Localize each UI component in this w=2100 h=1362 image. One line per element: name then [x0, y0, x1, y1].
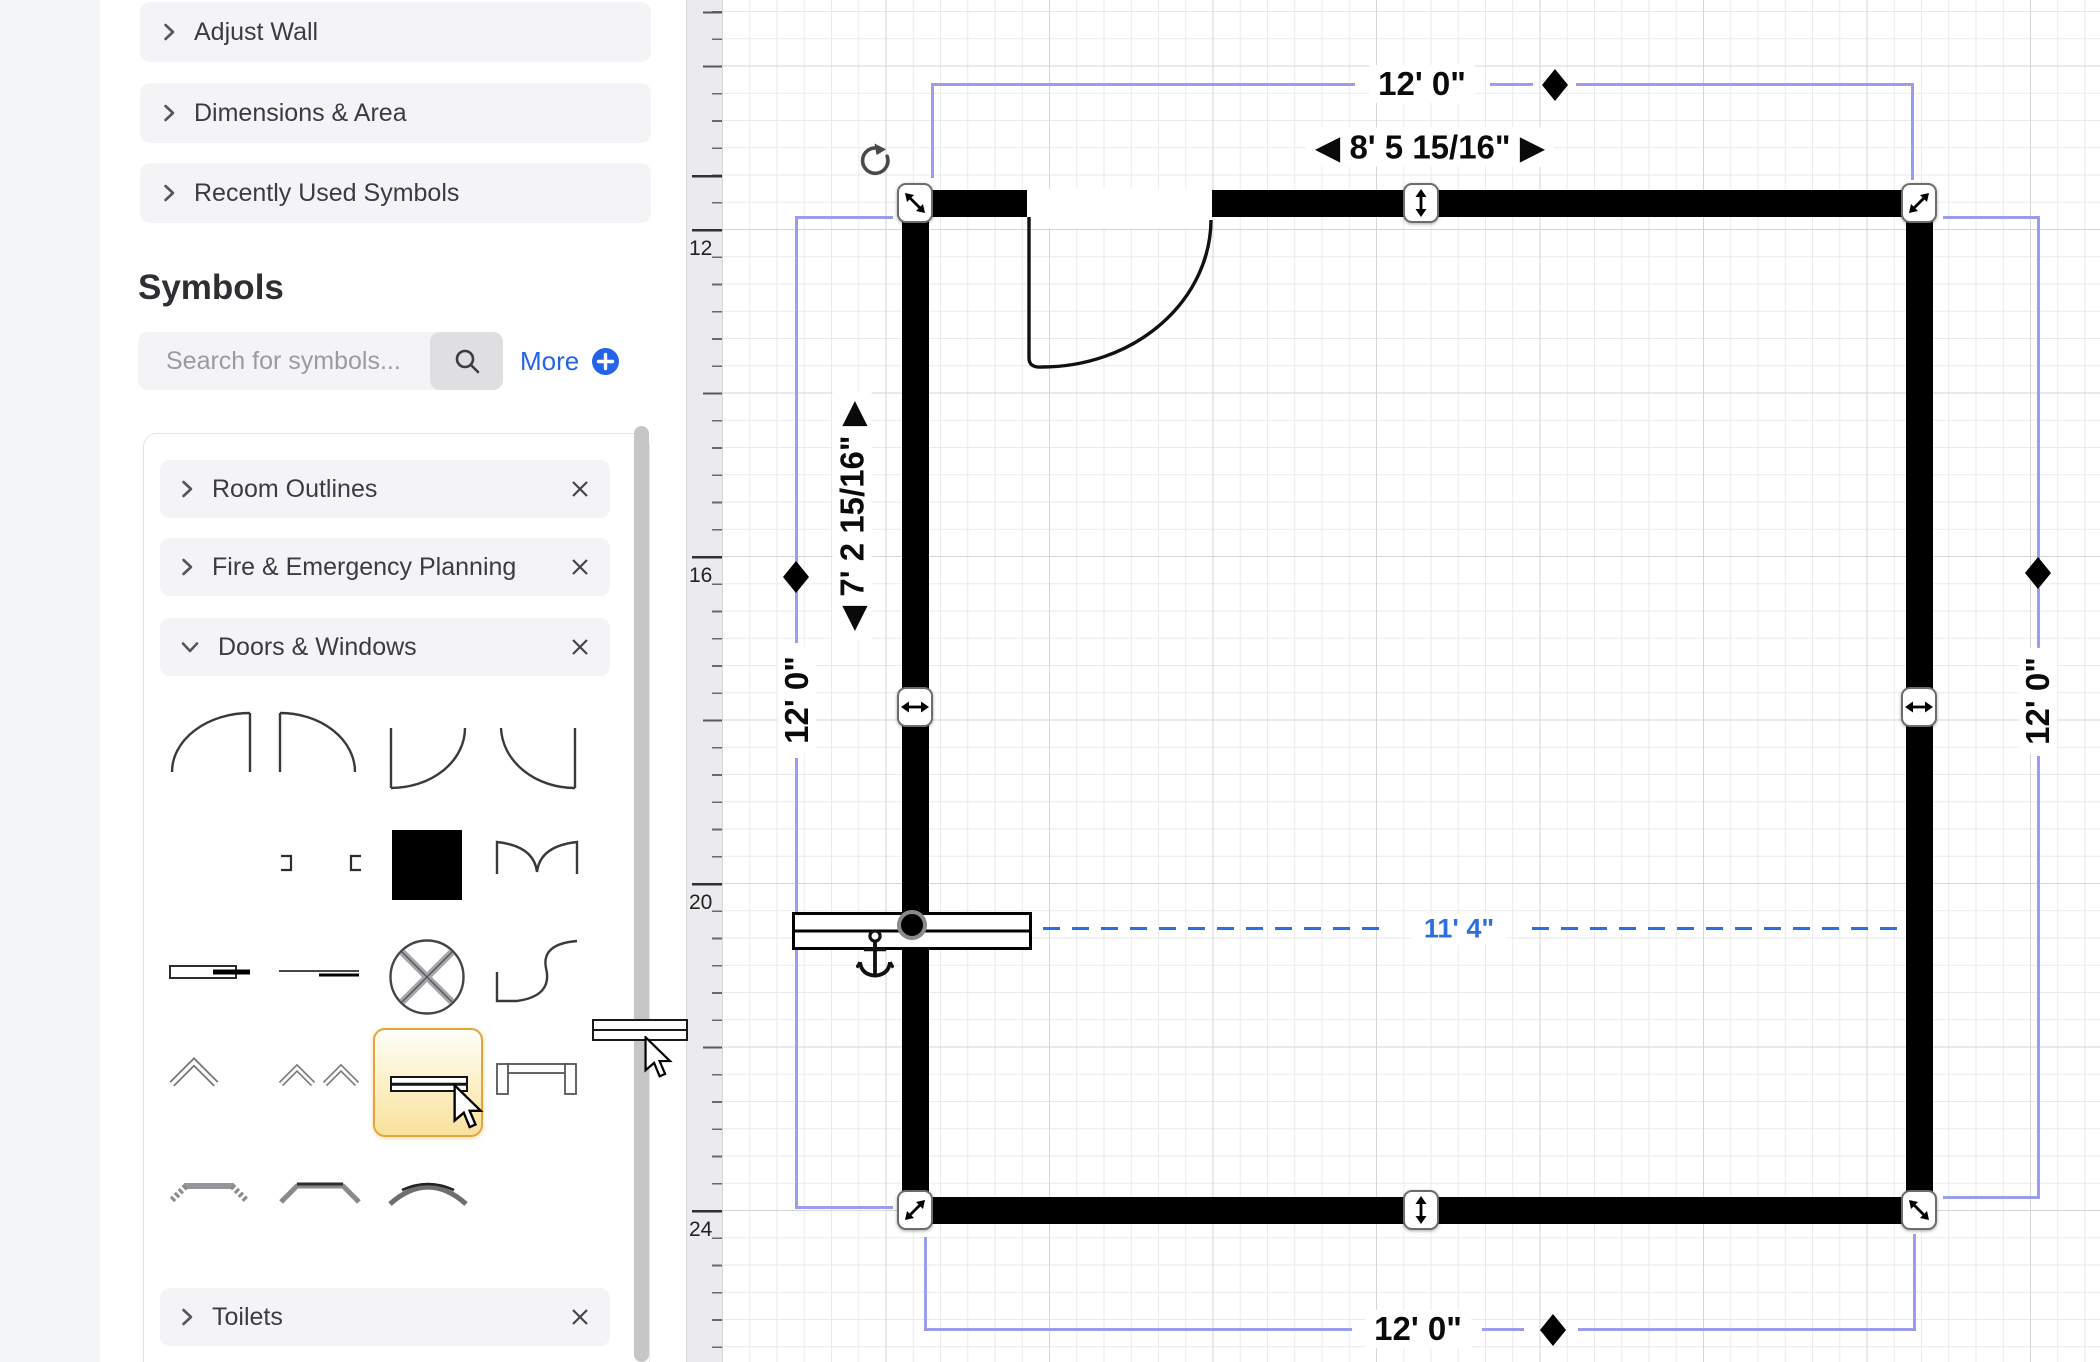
resize-nesw-icon: [903, 1198, 927, 1222]
dim-line: [924, 1237, 927, 1331]
dim-line: [2037, 216, 2040, 559]
symbol-bay-window[interactable]: [495, 1058, 579, 1096]
ruler-label: 12: [689, 237, 712, 261]
symbol-solid-square[interactable]: [392, 830, 462, 900]
dim-line: [1943, 216, 2040, 219]
search-icon: [453, 347, 481, 375]
resize-handle-sw[interactable]: [897, 1190, 933, 1230]
rotate-icon[interactable]: [856, 143, 894, 181]
resize-handle-w[interactable]: [897, 687, 933, 727]
dim-line: [795, 216, 893, 219]
dim-top-label[interactable]: 12' 0": [1369, 65, 1475, 103]
symbol-revolving-door[interactable]: [386, 938, 468, 1016]
symbol-bow-window-hatched[interactable]: [168, 1178, 254, 1204]
more-label: More: [520, 346, 579, 377]
symbol-casement-window[interactable]: [168, 1054, 222, 1090]
dim-door-offset-label[interactable]: ◀ 8' 5 15/16" ▶: [1306, 128, 1554, 167]
guide-distance-label: 11' 4": [1412, 914, 1506, 945]
category-room-outlines[interactable]: Room Outlines: [160, 460, 610, 518]
dim-line: [924, 1328, 1352, 1331]
symbol-door-down-right[interactable]: [386, 726, 470, 792]
dim-line: [795, 758, 798, 1209]
category-label: Toilets: [212, 1303, 570, 1332]
dim-diamond-icon: [1542, 69, 1568, 101]
wall-top-right-segment[interactable]: [1212, 190, 1933, 217]
cursor-arrow-icon: [453, 1084, 485, 1131]
dim-line: [1490, 83, 1533, 86]
dim-diamond-icon: [783, 561, 809, 593]
symbol-door-down-left[interactable]: [495, 726, 579, 792]
dim-right-label[interactable]: 12' 0": [2019, 648, 2057, 754]
guide-line: [1532, 927, 1906, 930]
window-anchor-knob[interactable]: [897, 910, 927, 940]
resize-handle-s[interactable]: [1403, 1190, 1439, 1230]
resize-handle-ne[interactable]: [1901, 183, 1937, 223]
more-shapes-link[interactable]: More: [520, 346, 620, 377]
section-label: Dimensions & Area: [194, 99, 407, 128]
ruler-label: 24: [689, 1218, 712, 1242]
symbol-search: [138, 332, 503, 390]
close-icon[interactable]: [570, 479, 590, 499]
dim-diamond-icon: [1540, 1314, 1566, 1346]
resize-ew-icon: [1905, 696, 1933, 718]
category-label: Fire & Emergency Planning: [212, 553, 570, 582]
resize-ew-icon: [901, 696, 929, 718]
dim-line: [795, 1206, 893, 1209]
section-recently-used-symbols[interactable]: Recently Used Symbols: [140, 163, 651, 223]
dim-line: [1943, 1196, 2040, 1199]
close-icon[interactable]: [570, 637, 590, 657]
left-gutter: [0, 0, 100, 1362]
floorplan-app: Adjust Wall Dimensions & Area Recently U…: [0, 0, 2100, 1362]
resize-nwse-icon: [903, 191, 927, 215]
chevron-right-icon: [180, 1307, 194, 1327]
dim-left-label[interactable]: 12' 0": [778, 647, 816, 753]
symbols-heading: Symbols: [138, 268, 284, 308]
section-label: Recently Used Symbols: [194, 179, 459, 208]
resize-nwse-icon: [1907, 1198, 1931, 1222]
section-adjust-wall[interactable]: Adjust Wall: [140, 2, 651, 62]
resize-nesw-icon: [1907, 191, 1931, 215]
category-label: Doors & Windows: [218, 633, 570, 662]
guide-line: [1043, 927, 1385, 930]
dim-line: [1911, 83, 1914, 180]
symbol-curved-door[interactable]: [493, 936, 581, 1006]
symbol-arched-window[interactable]: [386, 1178, 470, 1206]
vertical-ruler: 12 16 20 24: [686, 0, 722, 1362]
dim-line: [795, 216, 798, 565]
dim-wall-segment-label[interactable]: ◀ 7' 2 15/16" ▶: [833, 392, 872, 640]
chevron-right-icon: [180, 557, 194, 577]
dim-line: [931, 83, 934, 178]
dim-line: [931, 83, 1355, 86]
chevron-right-icon: [162, 183, 176, 203]
close-icon[interactable]: [570, 1307, 590, 1327]
resize-ns-icon: [1410, 1196, 1432, 1224]
category-fire-emergency[interactable]: Fire & Emergency Planning: [160, 538, 610, 596]
dim-line: [1913, 1234, 1916, 1331]
symbol-double-casement-window[interactable]: [277, 1060, 361, 1090]
dim-diamond-icon: [2025, 557, 2051, 589]
dim-line: [795, 591, 798, 643]
category-label: Room Outlines: [212, 475, 570, 504]
symbol-wall-opening[interactable]: [277, 852, 365, 874]
panel-scrollbar[interactable]: [634, 426, 649, 1362]
section-dimensions-area[interactable]: Dimensions & Area: [140, 83, 651, 143]
cursor-arrow-icon: [644, 1036, 674, 1080]
chevron-right-icon: [162, 103, 176, 123]
symbol-sliding-door[interactable]: [277, 964, 361, 980]
category-doors-windows[interactable]: Doors & Windows: [160, 618, 610, 676]
symbol-bow-window[interactable]: [277, 1178, 363, 1204]
section-label: Adjust Wall: [194, 18, 318, 47]
plus-circle-icon: [591, 347, 620, 376]
ruler-label: 20: [689, 891, 712, 915]
resize-handle-nw[interactable]: [897, 183, 933, 223]
door-swing[interactable]: [1000, 180, 1260, 390]
close-icon[interactable]: [570, 557, 590, 577]
dim-line: [1482, 1328, 1524, 1331]
chevron-right-icon: [180, 479, 194, 499]
dim-line: [1578, 1328, 1916, 1331]
symbol-pocket-door[interactable]: [168, 962, 252, 984]
ruler-label: 16: [689, 564, 712, 588]
search-button[interactable]: [430, 332, 503, 390]
dim-line: [2037, 588, 2040, 648]
ruler-major-ticks: [692, 0, 722, 1362]
anchor-cursor-icon: [856, 928, 894, 982]
resize-handle-n[interactable]: [1403, 183, 1439, 223]
resize-handle-e[interactable]: [1901, 687, 1937, 727]
dim-bottom-label[interactable]: 12' 0": [1365, 1310, 1471, 1348]
category-toilets[interactable]: Toilets: [160, 1288, 610, 1346]
symbol-double-door[interactable]: [495, 836, 579, 876]
dim-line: [1576, 83, 1914, 86]
chevron-right-icon: [162, 22, 176, 42]
symbol-door-left[interactable]: [168, 708, 254, 778]
dim-line: [2037, 756, 2040, 1199]
resize-ns-icon: [1410, 189, 1432, 217]
resize-handle-se[interactable]: [1901, 1190, 1937, 1230]
chevron-down-icon: [180, 640, 200, 654]
symbol-door-right[interactable]: [277, 708, 361, 778]
